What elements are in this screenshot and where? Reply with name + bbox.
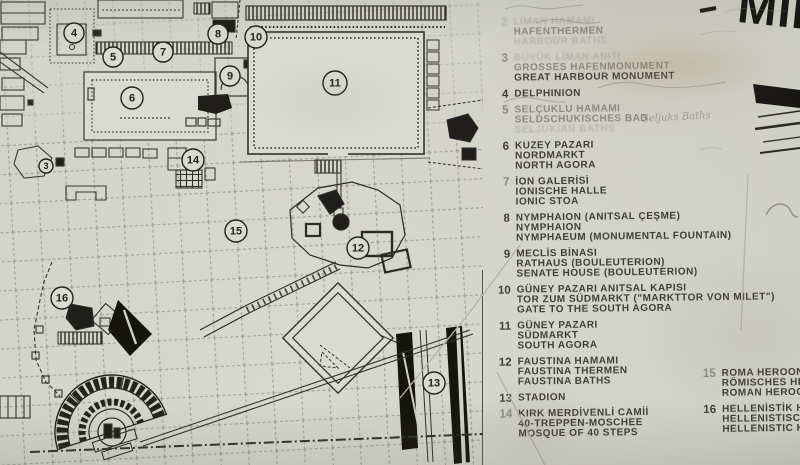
- north-agora: [84, 72, 216, 140]
- legend-item-lines: STADION: [518, 393, 566, 404]
- legend-item-number: 5: [482, 106, 514, 136]
- legend-item-number: 14: [486, 410, 518, 440]
- legend-item-lines: BÜYÜK LİMAN ANITIGROSSES HAFENMONUMENTGR…: [514, 52, 675, 84]
- legend-item-number: 7: [483, 178, 515, 208]
- legend-item-8: 8NYMPHAION (ANITSAL ÇEŞME)NYMPHAIONNYMPH…: [484, 210, 800, 244]
- legend-line: GATE TO THE SOUTH AGORA: [517, 302, 775, 315]
- legend-line: IONIC STOA: [516, 196, 608, 207]
- legend-item-lines: FAUSTINA HAMAMIFAUSTINA THERMENFAUSTINA …: [518, 356, 628, 387]
- legend-item-16: 16HELLENİSTİK HEROONHELLENISTISCHES HERO…: [690, 403, 800, 435]
- map-marker-14: 14: [182, 149, 204, 171]
- legend-item-number: 11: [485, 322, 517, 352]
- legend-item-number: 10: [485, 286, 517, 316]
- svg-text:7: 7: [160, 47, 166, 59]
- site-map: 345678910111213141516: [0, 0, 483, 465]
- legend-item-6: 6KUZEY PAZARINORDMARKTNORTH AGORA: [483, 138, 800, 172]
- map-marker-3: 3: [39, 159, 53, 173]
- legend-item-lines: KUZEY PAZARINORDMARKTNORTH AGORA: [515, 141, 596, 172]
- legend-line: HELLENISTIC HEROON: [722, 423, 800, 435]
- legend-item-4: 4DELPHINION: [482, 86, 800, 100]
- legend-line: SELJUKIAN BATHS: [515, 124, 649, 136]
- legend-item-number: 8: [484, 214, 516, 244]
- svg-text:5: 5: [110, 52, 116, 64]
- map-marker-12: 12: [347, 237, 369, 259]
- legend-item-lines: ROMA HEROONURÖMISCHES HEROONROMAN HEROON: [722, 367, 800, 398]
- svg-text:4: 4: [71, 28, 78, 40]
- legend-item-3: 3BÜYÜK LİMAN ANITIGROSSES HAFENMONUMENTG…: [482, 50, 800, 84]
- legend-item-number: 9: [484, 250, 516, 280]
- map-marker-13: 13: [423, 372, 445, 394]
- legend-line: STADION: [518, 393, 566, 404]
- legend-line: FAUSTINA BATHS: [518, 376, 628, 387]
- map-marker-7: 7: [153, 42, 173, 62]
- map-marker-5: 5: [103, 47, 123, 67]
- legend-item-15: 15ROMA HEROONURÖMISCHES HEROONROMAN HERO…: [690, 367, 800, 399]
- legend-item-number: 13: [486, 394, 518, 404]
- legend-item-lines: NYMPHAION (ANITSAL ÇEŞME)NYMPHAIONNYMPHA…: [516, 211, 732, 244]
- legend-item-number: 16: [690, 405, 722, 435]
- legend-column-2: 15ROMA HEROONURÖMISCHES HEROONROMAN HERO…: [690, 367, 800, 441]
- info-sign-photo: 345678910111213141516 2LİMAN HAMAMIHAFEN…: [0, 0, 800, 465]
- map-marker-9: 9: [220, 66, 240, 86]
- legend-line: MOSQUE OF 40 STEPS: [518, 428, 649, 440]
- legend-item-number: 3: [482, 54, 514, 84]
- legend-line: DELPHINION: [514, 89, 581, 100]
- legend-item-lines: GÜNEY PAZARI ANITSAL KAPISITOR ZUM SÜDMA…: [517, 282, 775, 315]
- svg-text:14: 14: [187, 155, 200, 167]
- legend-line: SOUTH AGORA: [517, 341, 598, 352]
- legend-item-number: 15: [690, 369, 722, 399]
- legend-item-11: 11GÜNEY PAZARISÜDMARKTSOUTH AGORA: [485, 318, 800, 352]
- svg-text:12: 12: [352, 243, 364, 255]
- legend-item-lines: İON GALERİSİIONISCHE HALLEIONIC STOA: [515, 176, 607, 207]
- legend-item-lines: LİMAN HAMAMIHAFENTHERMENHARBOUR BATHS: [513, 16, 607, 47]
- map-marker-10: 10: [245, 26, 267, 48]
- legend-item-7: 7İON GALERİSİIONISCHE HALLEIONIC STOA: [483, 174, 800, 208]
- svg-text:8: 8: [215, 29, 221, 41]
- legend-item-9: 9MECLİS BİNASIRATHAUS (BOULEUTERION)SENA…: [484, 246, 800, 280]
- map-marker-15: 15: [225, 220, 247, 242]
- map-marker-8: 8: [208, 24, 228, 44]
- legend-item-lines: GÜNEY PAZARISÜDMARKTSOUTH AGORA: [517, 321, 598, 352]
- legend-item-number: 2: [481, 18, 513, 48]
- svg-text:10: 10: [250, 32, 262, 44]
- svg-text:13: 13: [428, 378, 440, 390]
- legend-item-lines: HELLENİSTİK HEROONHELLENISTISCHES HEROON…: [722, 403, 800, 435]
- map-marker-16: 16: [51, 287, 73, 309]
- legend-line: ROMAN HEROON: [722, 387, 800, 398]
- legend-item-lines: MECLİS BİNASIRATHAUS (BOULEUTERION)SENAT…: [516, 247, 697, 279]
- svg-text:15: 15: [230, 226, 242, 238]
- svg-text:16: 16: [56, 293, 68, 305]
- map-marker-11: 11: [323, 71, 347, 95]
- legend-line: HARBOUR BATHS: [514, 36, 608, 47]
- legend-item-number: 6: [483, 142, 515, 172]
- legend-item-10: 10GÜNEY PAZARI ANITSAL KAPISITOR ZUM SÜD…: [485, 282, 800, 316]
- map-marker-6: 6: [121, 87, 143, 109]
- legend-item-lines: DELPHINION: [514, 89, 581, 100]
- map-marker-4: 4: [64, 23, 84, 43]
- legend-line: SENATE HOUSE (BOULEUTERION): [516, 267, 697, 279]
- legend-item-number: 12: [486, 358, 518, 388]
- svg-text:6: 6: [129, 93, 135, 105]
- legend-item-lines: SELÇUKLU HAMAMISELDSCHUKISCHES BADSELJUK…: [514, 104, 648, 136]
- legend-line: NYMPHAEUM (MONUMENTAL FOUNTAIN): [516, 231, 732, 244]
- svg-text:11: 11: [329, 78, 341, 90]
- legend-item-lines: KIRK MERDİVENLİ CAMİİ40-TREPPEN-MOSCHEEM…: [518, 408, 649, 440]
- legend-line: GREAT HARBOUR MONUMENT: [514, 72, 675, 84]
- legend-item-number: 4: [482, 90, 514, 100]
- svg-text:3: 3: [43, 161, 48, 171]
- legend-line: NORTH AGORA: [515, 161, 596, 172]
- svg-text:9: 9: [227, 71, 233, 83]
